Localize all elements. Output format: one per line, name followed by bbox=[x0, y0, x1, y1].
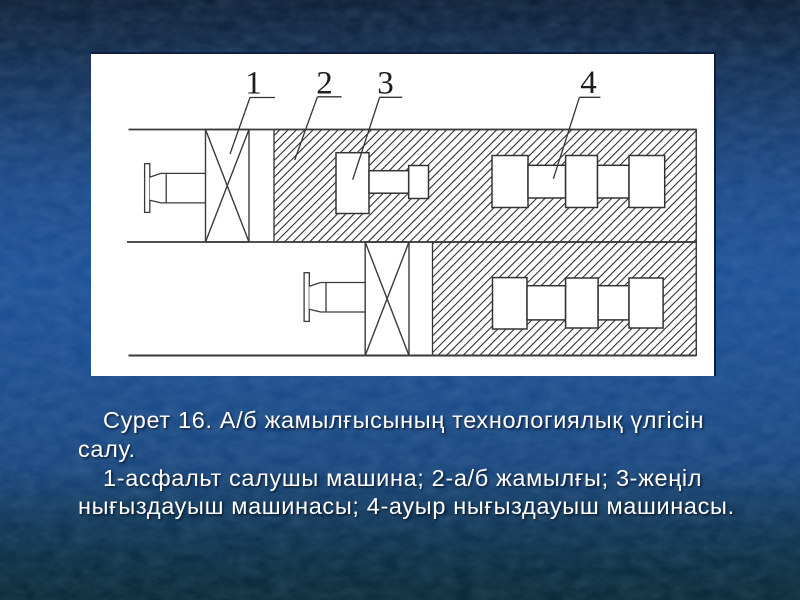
svg-text:2: 2 bbox=[316, 66, 333, 102]
svg-text:4: 4 bbox=[580, 65, 597, 101]
svg-text:1: 1 bbox=[245, 66, 262, 102]
svg-text:3: 3 bbox=[377, 66, 394, 102]
